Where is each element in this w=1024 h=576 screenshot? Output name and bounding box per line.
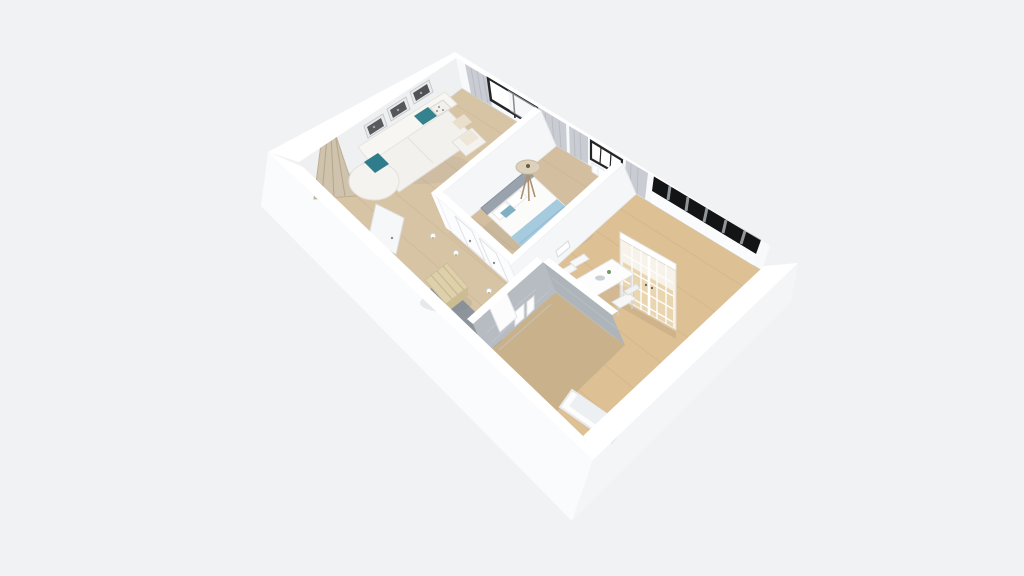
sconce: [486, 288, 491, 294]
sconce: [430, 233, 435, 239]
door-handle: [391, 237, 393, 239]
door-handle: [469, 240, 471, 242]
table-plant-sprig: [607, 270, 611, 274]
floorplan-render-canvas[interactable]: [0, 0, 1024, 576]
plate-decor: [595, 275, 605, 280]
sconce: [453, 250, 458, 256]
door-handle: [493, 262, 495, 264]
